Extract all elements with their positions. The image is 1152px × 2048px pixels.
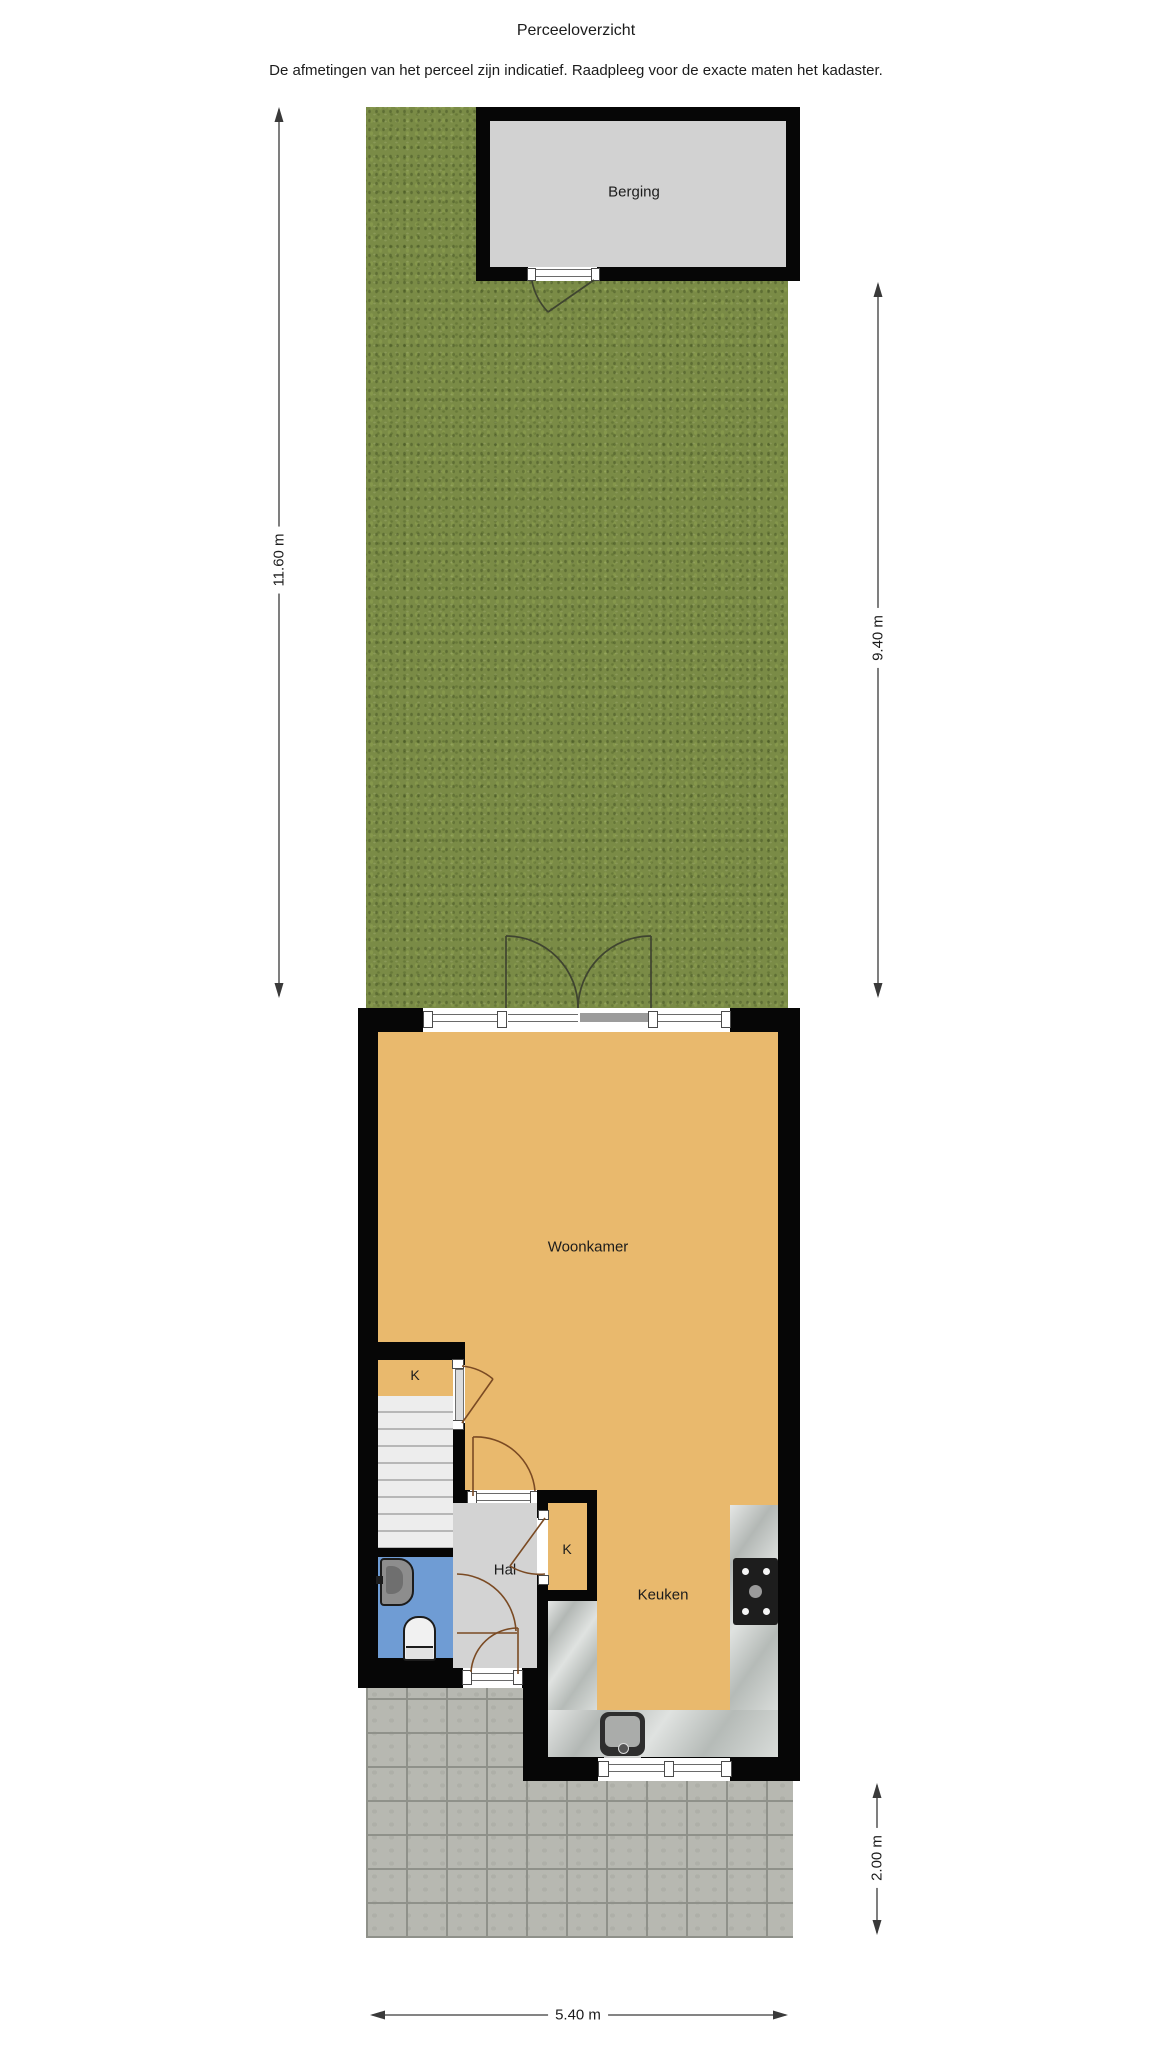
closet1-door-arc xyxy=(462,1366,493,1379)
arrowhead xyxy=(874,983,883,998)
arrowhead xyxy=(275,983,284,998)
arrowhead xyxy=(874,282,883,297)
berging-door-arc xyxy=(532,281,548,312)
garden-doors xyxy=(506,936,651,1008)
front-door-arc xyxy=(471,1628,518,1672)
arrowhead xyxy=(873,1920,882,1935)
berging-door-leaf xyxy=(548,280,594,312)
garden-door-arc xyxy=(506,936,578,1008)
arrowhead xyxy=(773,2011,788,2020)
arrowhead xyxy=(370,2011,385,2020)
dimension-label-plot-width: 5.40 m xyxy=(548,2006,608,2025)
arrowhead xyxy=(275,107,284,122)
dimension-label-garden-depth: 11.60 m xyxy=(270,526,289,593)
interior-doors xyxy=(457,1366,545,1674)
closet2-door-leaf xyxy=(510,1518,545,1566)
closet2-door-arc xyxy=(510,1566,545,1574)
closet1-door-leaf xyxy=(462,1379,493,1423)
berging-door xyxy=(532,280,594,312)
dimension-label-garden-to-shed: 9.40 m xyxy=(869,608,888,668)
dimension-label-terrace-depth: 2.00 m xyxy=(868,1828,887,1888)
toilet-door-arc xyxy=(457,1574,516,1631)
floorplan-page: Perceeloverzicht De afmetingen van het p… xyxy=(0,0,1152,2048)
dimension-lines xyxy=(275,107,883,2020)
linework-overlay xyxy=(0,0,1152,2048)
garden-door-arc xyxy=(578,936,651,1008)
hal-door-arc xyxy=(473,1437,535,1491)
arrowhead xyxy=(873,1783,882,1798)
